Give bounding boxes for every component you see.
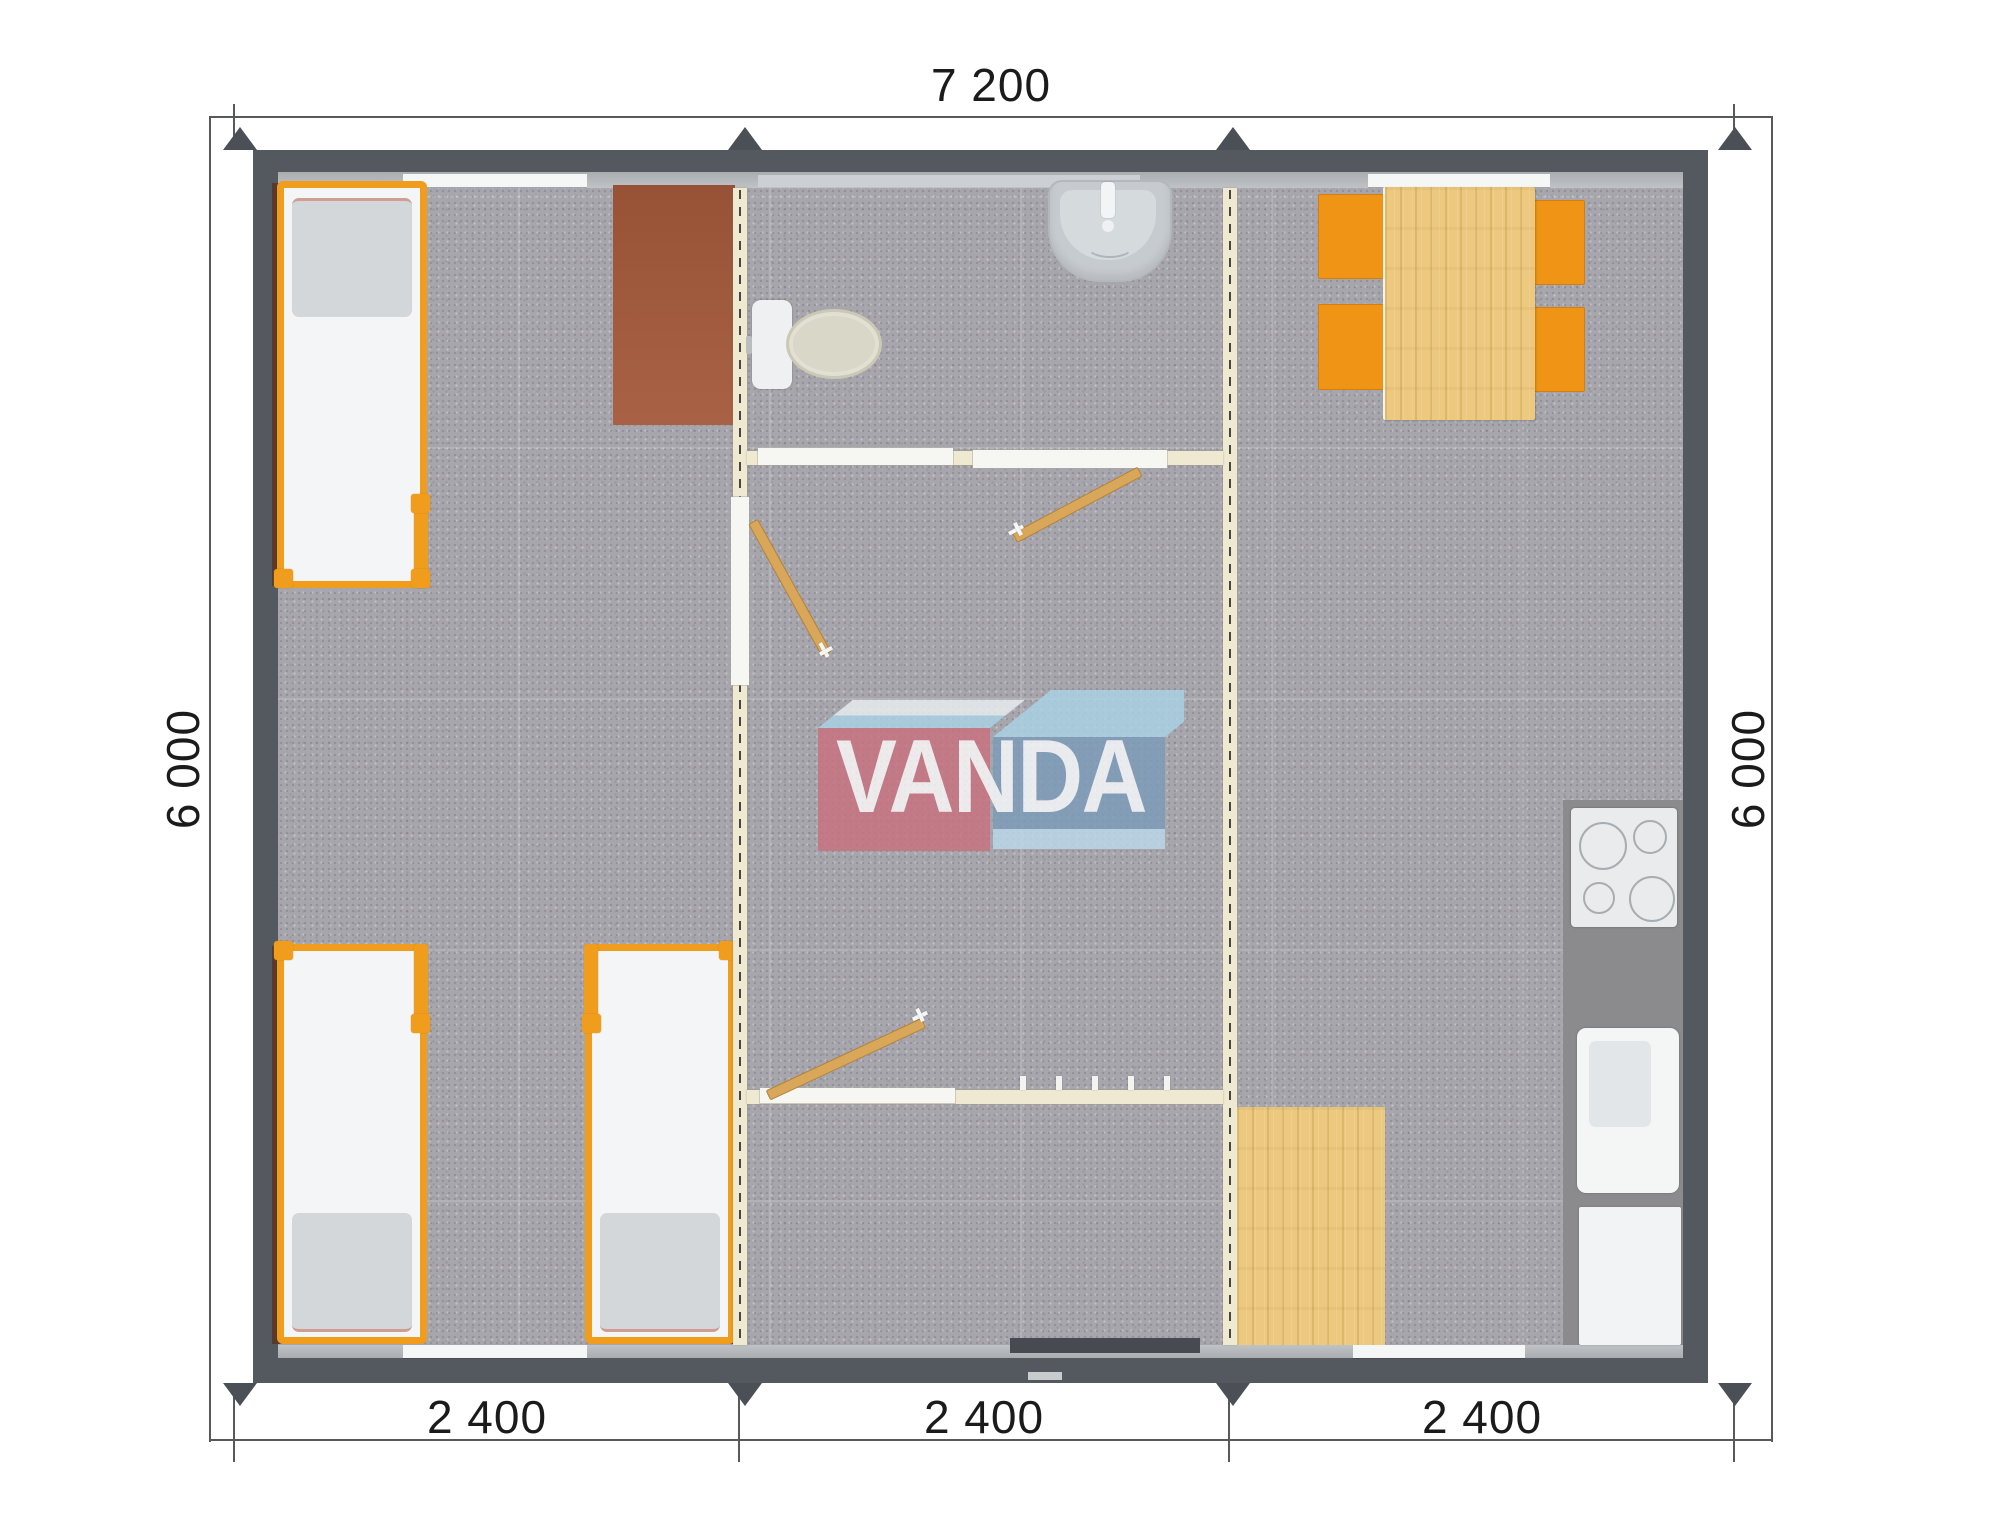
dining-table [1383, 187, 1535, 420]
cooktop [1571, 808, 1677, 927]
bed-post [582, 1014, 601, 1033]
entrance-door-threshold [1010, 1338, 1200, 1353]
door-opening-bathroom-left [758, 448, 953, 465]
dining-chair [1318, 194, 1386, 279]
tick-arrow-bottom [223, 1383, 257, 1406]
pillow [292, 198, 412, 317]
bed-bottom-middle [585, 944, 735, 1344]
bed-bottom-left [277, 944, 427, 1344]
faucet [1101, 182, 1115, 218]
bed-post [411, 1014, 430, 1033]
bed-post [274, 569, 293, 588]
coat-hook [1056, 1076, 1062, 1090]
kitchen-cabinet [1579, 1207, 1681, 1345]
tick-arrow-bottom [1216, 1383, 1250, 1406]
tick-arrow-top [728, 127, 762, 150]
coat-hook [1092, 1076, 1098, 1090]
kitchen-sink-basin [1589, 1041, 1651, 1127]
dining-chair [1318, 304, 1386, 390]
burner [1633, 820, 1667, 854]
window-top-left [403, 174, 587, 187]
bed-post [274, 941, 293, 960]
dimension-bay-3: 2 400 [1382, 1390, 1582, 1444]
washbasin-drain [1086, 234, 1134, 258]
dimension-right-height: 6 000 [1721, 689, 1775, 849]
washbasin [1048, 180, 1172, 282]
burner [1629, 876, 1675, 922]
coat-hook [1128, 1076, 1134, 1090]
dimension-top-width: 7 200 [891, 58, 1091, 112]
tick-arrow-top [1216, 127, 1250, 150]
floor-plan: 7 200 6 000 6 000 2 400 2 400 2 400 [0, 0, 2000, 1537]
vanda-logo: VANDA [812, 686, 1184, 856]
window-bottom-right [1353, 1345, 1525, 1358]
door-opening-left-partition [731, 497, 749, 685]
bed-post [411, 569, 430, 588]
dimension-bay-1: 2 400 [387, 1390, 587, 1444]
partition-wall-left [733, 188, 747, 1345]
window-top-right [1368, 174, 1550, 187]
partition-wall-right [1223, 188, 1237, 1345]
tick-arrow-bottom [728, 1383, 762, 1406]
pillow [292, 1213, 412, 1332]
bed-post [411, 494, 430, 513]
coat-hook [1164, 1076, 1170, 1090]
toilet-bowl [786, 309, 882, 379]
tick-arrow-top [223, 127, 257, 150]
dimension-line-top [210, 116, 1772, 118]
logo-wordmark: VANDA [836, 718, 1146, 837]
bed-top-left [277, 181, 427, 588]
dimension-bay-2: 2 400 [884, 1390, 1084, 1444]
coat-hook [1020, 1076, 1026, 1090]
dimension-left-height: 6 000 [156, 689, 210, 849]
wood-floor-mat [1237, 1107, 1385, 1345]
kitchen-sink [1577, 1028, 1679, 1193]
dining-chair [1533, 307, 1585, 392]
faucet-knob [1102, 220, 1114, 232]
dining-chair [1533, 200, 1585, 285]
desk [613, 185, 735, 425]
burner [1579, 822, 1627, 870]
entrance-step [1028, 1372, 1062, 1380]
pillow [600, 1213, 720, 1332]
tick-arrow-bottom [1718, 1383, 1752, 1406]
toilet-flush-button [746, 336, 752, 354]
door-opening-bathroom-right [973, 450, 1167, 468]
burner [1583, 882, 1615, 914]
tick-arrow-top [1718, 127, 1752, 150]
window-bottom-left [403, 1345, 587, 1358]
